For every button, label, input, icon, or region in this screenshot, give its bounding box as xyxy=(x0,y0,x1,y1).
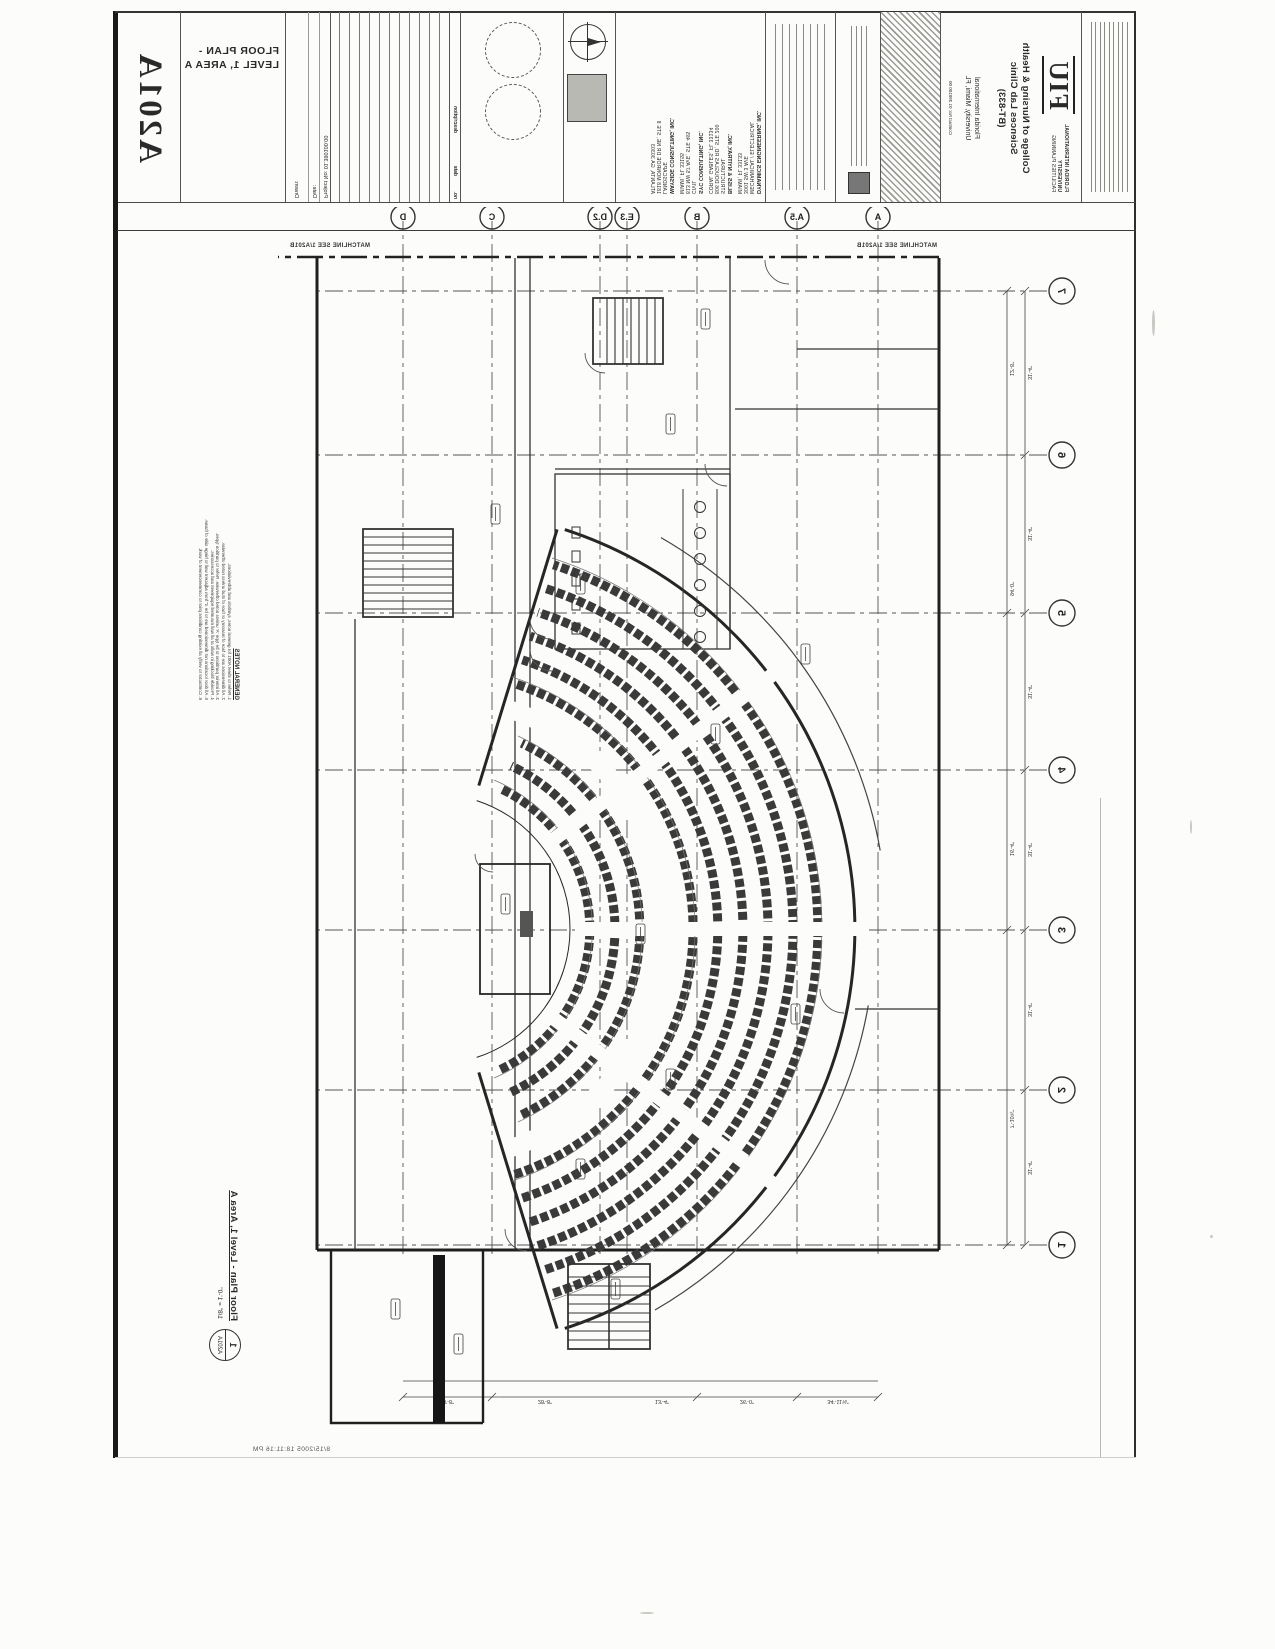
room-tags xyxy=(391,309,810,1354)
svg-text:94'-0": 94'-0" xyxy=(1008,582,1014,596)
revisions-table: no. date description xyxy=(330,12,460,202)
note-line: 3. All interior partitions to be type 'A… xyxy=(215,316,221,700)
svg-text:34'-11⅝": 34'-11⅝" xyxy=(827,1398,848,1404)
title-block: FLORIDA INTERNATIONAL UNIVERSITY FACILIT… xyxy=(118,12,1135,203)
professional-seal xyxy=(485,22,541,78)
project-name: College of Nursing & Health Sciences Lab… xyxy=(995,18,1031,198)
stair-south xyxy=(363,529,453,617)
project-name-line3: (BT-833) xyxy=(995,18,1007,198)
key-plan xyxy=(567,74,607,122)
architect-info-block xyxy=(1081,12,1135,202)
revisions-empty-rows xyxy=(330,12,449,202)
room-tag xyxy=(791,1004,800,1024)
grid-bubble-D2: D.2 xyxy=(593,212,607,222)
seals-block xyxy=(460,12,563,202)
grid-bubble-A: A xyxy=(874,212,881,222)
revisions-col-date: date xyxy=(452,136,458,179)
grid-bubble-5: 5 xyxy=(1055,610,1067,616)
dimension-texts-top: 31'-4"31'-4" 31'-4"31'-4" 31'-4"31'-4" 7… xyxy=(1008,362,1032,1175)
drawing-title: Floor Plan - Level 1, Area A xyxy=(228,1190,239,1321)
consultant-city: MIAMI, FL 33133 xyxy=(736,20,742,194)
consultants-block: DYNAMICS ENGINEERING, INC. MECHANICAL / … xyxy=(615,12,765,202)
note-line: 4. Provide blocking in walls at all wall… xyxy=(209,316,215,700)
drawing-title-bar: 1 A201A Floor Plan - Level 1, Area A 1/8… xyxy=(203,1061,243,1361)
room-tag xyxy=(611,1279,620,1299)
svg-text:31'-4": 31'-4" xyxy=(1026,1161,1032,1175)
svg-text:31'-4": 31'-4" xyxy=(1026,527,1032,541)
sheet-title-line1: FLOOR PLAN - xyxy=(180,44,279,58)
note-line: 2. All dimensions are to face of masonry… xyxy=(220,316,226,700)
sheet-number: A201A xyxy=(131,12,168,202)
svg-text:31'-4": 31'-4" xyxy=(1026,1003,1032,1017)
field-project-no: Project No: 01.390100.00 xyxy=(319,12,330,202)
auditorium-aisles xyxy=(507,670,865,1188)
project-location-line2: University, Miami, FL xyxy=(963,18,972,198)
detail-sheet: A201A xyxy=(213,1330,225,1360)
grid-bubble-3: 3 xyxy=(1055,927,1067,933)
associate-block xyxy=(835,12,880,202)
north-arrow-icon xyxy=(570,24,606,60)
consultant-discipline: LANDSCAPE xyxy=(661,20,667,194)
room-tag xyxy=(391,1299,400,1319)
consultant-city: ATLANTA, GA 30303 xyxy=(649,20,655,194)
note-line: 1. Refer to sheet A001 for general notes… xyxy=(226,316,232,700)
grid-bubble-2: 2 xyxy=(1055,1087,1067,1093)
consultant-entry: DYNAMICS ENGINEERING, INC. MECHANICAL / … xyxy=(736,20,761,194)
project-location: Florida International University, Miami,… xyxy=(963,18,981,198)
svg-text:26'-0": 26'-0" xyxy=(740,1398,754,1404)
revisions-col-no: no. xyxy=(452,179,458,202)
dimension-texts-left: 34'-11⅝" 26'-0" 13'-4" 28'-8" 18'-8" xyxy=(440,1398,849,1404)
consultant-entry: SYC CONSULTING, INC. CIVIL 813 NW 57 AVE… xyxy=(678,20,703,194)
dimension-lines-left xyxy=(399,1381,882,1401)
consultant-city: MIAMI, FL 33155 xyxy=(678,20,684,194)
university-name: FLORIDA INTERNATIONAL UNIVERSITY FACILIT… xyxy=(1050,122,1070,192)
detail-number: 1 xyxy=(225,1330,240,1360)
dimension-lines-top xyxy=(1003,287,1029,1249)
sheet-number-block: A201A xyxy=(118,12,180,202)
drawing-sheet: 1 2 3 4 5 6 7 A A.5 B E.3 D.2 C D xyxy=(0,0,1275,1649)
project-name-line1: College of Nursing & Health xyxy=(1019,18,1031,198)
stair-east xyxy=(593,298,663,364)
room-tag xyxy=(454,1334,463,1354)
project-location-line1: Florida International xyxy=(972,18,981,198)
consultant-firm: BLISS & NYITRAY, INC. xyxy=(725,20,732,194)
room-tag xyxy=(666,414,675,434)
grid-bubble-B: B xyxy=(693,212,700,222)
grid-bubble-C: C xyxy=(488,212,495,222)
svg-text:31'-4": 31'-4" xyxy=(1026,366,1032,380)
consultant-address: 813 NW 57 AVE, STE 465 xyxy=(684,20,690,194)
university-line3: FACILITIES PLANNING xyxy=(1050,122,1057,192)
associate-logo xyxy=(848,172,870,194)
fields-block: Project No: 01.390100.00 Date: Drawn: Ch… xyxy=(285,12,330,202)
grid-bubble-7: 7 xyxy=(1055,288,1067,294)
room-tag xyxy=(501,894,510,914)
consultant-firm: DYNAMICS ENGINEERING, INC. xyxy=(754,20,761,194)
grid-bubble-6: 6 xyxy=(1055,452,1067,458)
general-notes-heading: GENERAL NOTES xyxy=(233,316,239,700)
consultant-address: 806 DOUGLAS RD, STE 200 xyxy=(713,20,719,194)
consultant-address: 3001 SW 3 AVE xyxy=(742,20,748,194)
detail-number-bubble: 1 A201A xyxy=(209,1329,241,1361)
field-drawn: Drawn: xyxy=(291,107,301,202)
consultant-discipline: MECHANICAL / ELECTRICAL xyxy=(748,20,754,194)
sheet-title: FLOOR PLAN - LEVEL 1, AREA A xyxy=(180,44,279,72)
sheet-title-block: FLOOR PLAN - LEVEL 1, AREA A xyxy=(180,12,285,202)
svg-text:16'-4": 16'-4" xyxy=(1008,842,1014,856)
grid-bubble-1: 1 xyxy=(1055,1242,1067,1248)
stamp-block xyxy=(880,12,940,202)
revisions-header: no. date description xyxy=(449,12,460,202)
note-line: 6. Contractor to verify all existing con… xyxy=(197,316,203,700)
room-tag xyxy=(801,644,810,664)
consultant-entry: BLISS & NYITRAY, INC. STRUCTURAL 806 DOU… xyxy=(707,20,732,194)
project-name-line2: Sciences Lab Clinic xyxy=(1007,18,1019,198)
revisions-col-description: description xyxy=(452,106,458,136)
svg-text:13'-4": 13'-4" xyxy=(655,1398,669,1404)
shear-wall xyxy=(433,1255,445,1423)
svg-text:7'-10¾": 7'-10¾" xyxy=(1008,1110,1014,1129)
keyplan-block xyxy=(563,12,615,202)
grid-bubble-E3: E.3 xyxy=(620,212,634,222)
plot-stamp: 8/15/2005 18:11:16 PM xyxy=(252,1446,330,1453)
consultant-city: CORAL GABLES, FL 33134 xyxy=(707,20,713,194)
consultant-firm: SYC CONSULTING, INC. xyxy=(696,20,703,194)
university-line1: FLORIDA INTERNATIONAL xyxy=(1063,122,1070,192)
drawing-scale: 1/8" = 1'-0" xyxy=(216,1287,223,1319)
svg-text:31'-4": 31'-4" xyxy=(1026,843,1032,857)
associate-text-lines xyxy=(848,26,870,166)
restroom-fixtures xyxy=(572,489,717,649)
svg-text:31'-4": 31'-4" xyxy=(1026,685,1032,699)
floor-plan-drawing: 1 2 3 4 5 6 7 A A.5 B E.3 D.2 C D xyxy=(95,207,1145,1469)
project-id-block: FLORIDA INTERNATIONAL UNIVERSITY FACILIT… xyxy=(940,12,1081,202)
consultant-discipline: STRUCTURAL xyxy=(719,20,725,194)
address-block xyxy=(765,12,835,202)
consultant-firm: WAYSIDE CONSULTING, INC. xyxy=(667,20,674,194)
grid-bubble-D: D xyxy=(399,212,406,222)
svg-text:28'-8": 28'-8" xyxy=(538,1398,552,1404)
fiu-logo: FIU xyxy=(1042,57,1075,115)
field-date: Date: xyxy=(308,12,319,202)
grid-row-bubbles xyxy=(391,207,890,229)
matchline-label-north: MATCHLINE SEE 1/A201B xyxy=(857,243,937,249)
matchline-label-south: MATCHLINE SEE 1/A201B xyxy=(290,243,370,249)
consultant-address: 1818 MONROE DR NE, STE 8 xyxy=(655,20,661,194)
general-notes: GENERAL NOTES 1. Refer to sheet A001 for… xyxy=(177,316,239,700)
stair-west xyxy=(568,1264,650,1349)
grid-bubble-A5: A.5 xyxy=(790,212,804,222)
podium xyxy=(520,911,533,937)
grid-column-labels: 1 2 3 4 5 6 7 xyxy=(1055,288,1067,1248)
sheet-title-line2: LEVEL 1, AREA A xyxy=(180,58,279,72)
grid-bubble-4: 4 xyxy=(1055,766,1067,773)
scanned-sheet-page: 1 2 3 4 5 6 7 A A.5 B E.3 D.2 C D xyxy=(0,0,1275,1649)
professional-seal xyxy=(485,84,541,140)
contract-number: Contract No: 01 390100 00 xyxy=(947,18,953,198)
svg-text:12'-8": 12'-8" xyxy=(1008,362,1014,376)
consultant-entry: WAYSIDE CONSULTING, INC. LANDSCAPE 1818 … xyxy=(649,20,674,194)
room-tag xyxy=(701,309,710,329)
note-line: 5. All door locations not dimensioned ar… xyxy=(203,316,209,700)
